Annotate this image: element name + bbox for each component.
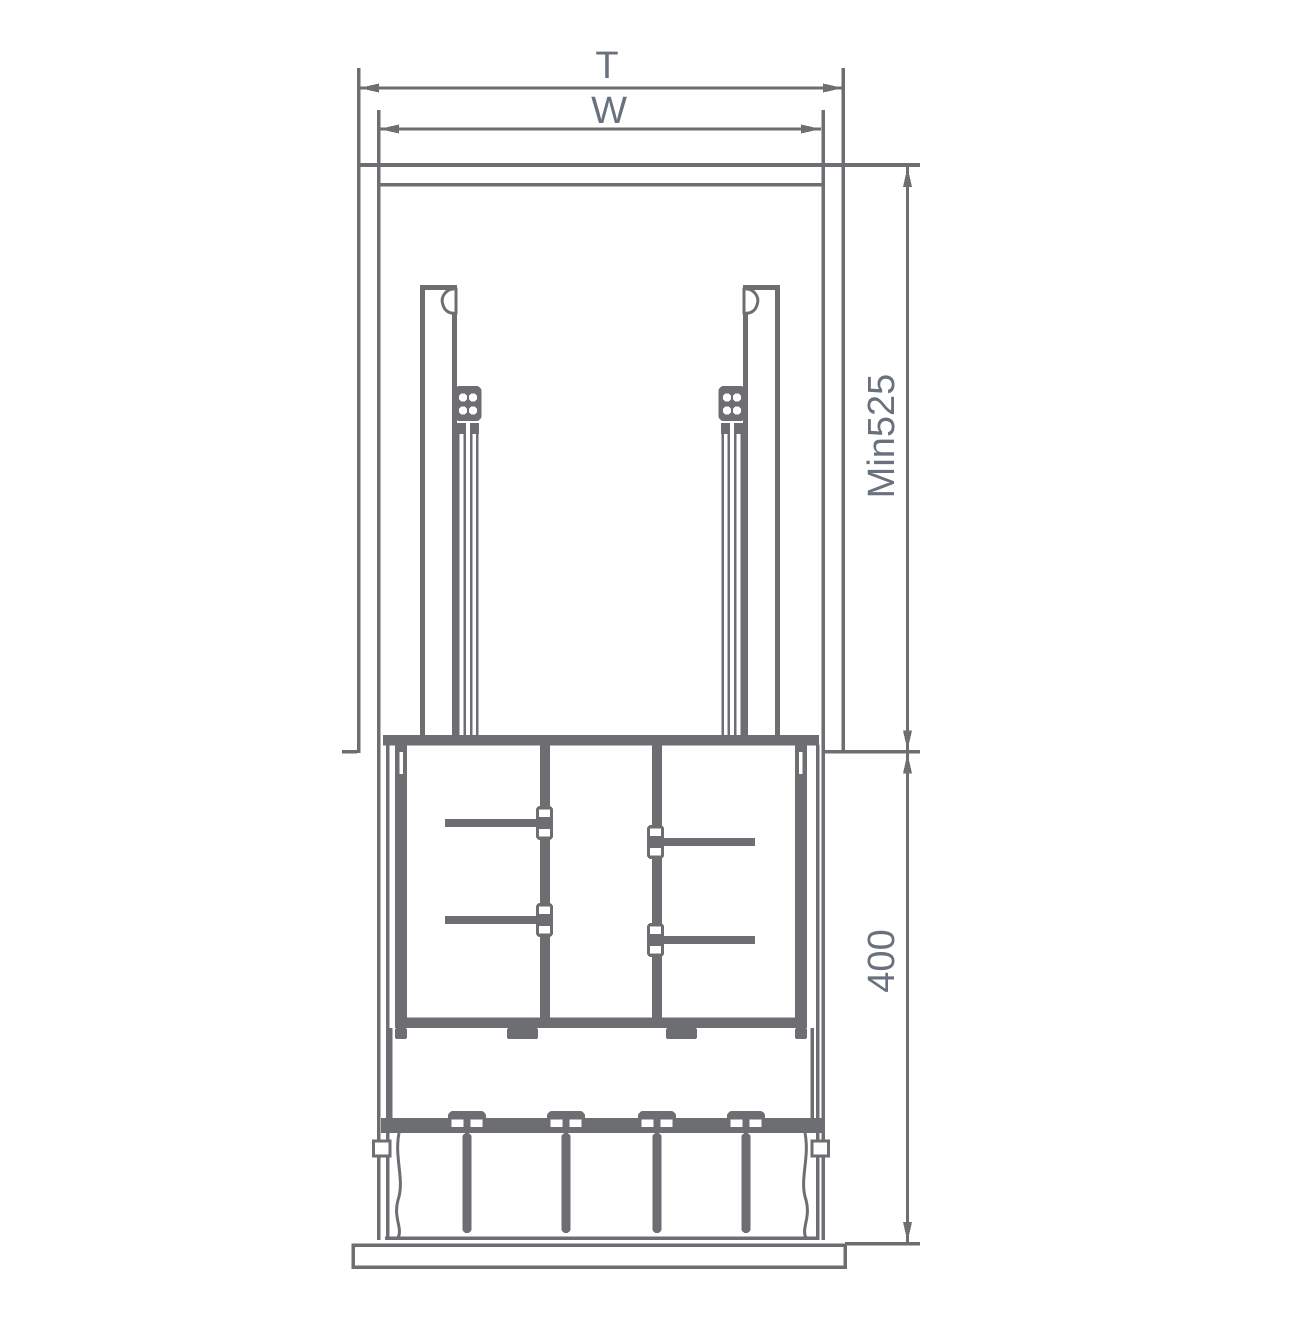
rail-left-channel-inner [452, 288, 457, 737]
basket-clip-slot [452, 1120, 464, 1128]
cabinet-left-outer-wall [357, 68, 361, 753]
handle-clip-slot [539, 926, 550, 934]
screw-hole-icon [723, 406, 731, 414]
rail-right-block [734, 423, 744, 434]
basket-clip-slot [642, 1120, 654, 1128]
arrow-down-icon [903, 731, 912, 751]
handle-clip-slot [539, 829, 550, 837]
dimension-label-min525: Min525 [862, 351, 902, 521]
cabinet-right-inner-wall [822, 110, 826, 1240]
rail-left-block [457, 423, 467, 434]
cabinet-right-outer-wall [842, 68, 846, 753]
rail-left-channel-outer [420, 285, 425, 737]
screw-hole-icon [723, 393, 731, 401]
dimension-label-t: T [577, 46, 637, 86]
rail-left [420, 285, 482, 737]
rail-right-hook [744, 289, 758, 313]
box-right-wall-slot [799, 752, 803, 774]
rail-left-slide-member [457, 434, 460, 737]
handle-rod [445, 916, 537, 924]
box-foot [666, 1028, 697, 1039]
screw-hole-icon [459, 393, 467, 401]
box-foot [395, 1028, 407, 1039]
basket-post [463, 1133, 472, 1233]
unit-top-bar [383, 735, 819, 746]
basket-clip-and-post [638, 1111, 676, 1233]
handle-clip-slot [650, 946, 661, 954]
handle-clip-slot [650, 927, 661, 935]
base-plate [353, 1245, 845, 1267]
cabinet-top-line [357, 163, 920, 167]
pullout-unit [374, 735, 829, 1240]
rail-left-block [470, 423, 479, 434]
basket-clip-slot [551, 1120, 563, 1128]
box-divider-left [540, 746, 550, 1018]
side-bracket-left [374, 1141, 391, 1156]
dimension-label-w: W [579, 91, 639, 131]
basket-post [653, 1133, 662, 1233]
rail-right-slide-member [722, 434, 725, 737]
rail-left-hook [442, 289, 456, 313]
basket-clip-and-post [448, 1111, 486, 1233]
rail-left-mounting-plate [455, 386, 482, 421]
rail-right-block [721, 423, 730, 434]
handle-rod [664, 936, 755, 944]
basket-mesh-side-right [804, 1133, 808, 1238]
box-bottom-bar [395, 1018, 807, 1029]
rail-left-slide-member [464, 434, 467, 737]
screw-hole-icon [459, 406, 467, 414]
rail-right-slide-member [734, 434, 737, 737]
dimension-min525-line [906, 167, 909, 751]
right-bottom-extension-line [845, 1242, 920, 1246]
rail-right [719, 285, 781, 737]
box-divider-right [652, 746, 662, 1018]
handle-clip-slot [650, 829, 661, 837]
rail-right-channel-inner [743, 288, 748, 737]
drawing-linework [0, 0, 1290, 1321]
arrow-left-icon [359, 84, 379, 93]
rail-right-mounting-plate [719, 386, 746, 421]
rail-left-slide-member [470, 434, 473, 737]
box-foot [795, 1028, 807, 1039]
box-right-wall [795, 745, 807, 1028]
right-mid-extension-line [825, 750, 920, 754]
basket-bottom-line [385, 1237, 819, 1241]
arrow-up-icon [903, 754, 912, 774]
side-bracket-right [812, 1141, 829, 1156]
mid-panel-right-border [811, 1028, 815, 1118]
arrow-right-icon [823, 84, 843, 93]
box-left-wall-slot [400, 752, 404, 774]
rail-left-slide-member [476, 434, 479, 737]
handle-clip-slot [539, 810, 550, 818]
basket-clip-slot [731, 1120, 743, 1128]
basket-post [742, 1133, 751, 1233]
handle-rod [445, 819, 537, 827]
basket-post [562, 1133, 571, 1233]
unit-left-wall-inner [386, 745, 390, 1240]
unit-right-wall-inner [816, 745, 820, 1240]
basket-clip-and-post [547, 1111, 585, 1233]
arrow-down-icon [903, 1222, 912, 1242]
basket-clip-and-post [727, 1111, 765, 1233]
cabinet-outline [342, 68, 920, 1246]
arrow-up-icon [903, 167, 912, 187]
handle-rod [664, 838, 755, 846]
basket-mesh-side-left [397, 1133, 401, 1238]
cabinet-left-inner-wall [377, 110, 381, 1240]
dimension-min525 [903, 167, 912, 751]
left-wall-end-tick [342, 750, 357, 754]
basket-clip-slot [471, 1120, 483, 1128]
screw-hole-icon [469, 393, 477, 401]
handle-clip-slot [539, 907, 550, 915]
cabinet-inner-top-line [377, 183, 823, 187]
handle-clip-slot [650, 848, 661, 856]
basket-clip-slot [750, 1120, 762, 1128]
rail-right-slide-member [728, 434, 731, 737]
screw-hole-icon [469, 406, 477, 414]
screw-hole-icon [733, 393, 741, 401]
technical-drawing-canvas: T W Min525 400 [0, 0, 1290, 1321]
mid-panel-left-border [389, 1028, 393, 1118]
box-left-wall [395, 745, 407, 1028]
dimension-label-400: 400 [862, 876, 902, 1046]
dimension-400-line [906, 754, 909, 1243]
screw-hole-icon [733, 406, 741, 414]
rail-right-slide-member [741, 434, 744, 737]
box-foot [507, 1028, 538, 1039]
basket-clip-slot [661, 1120, 673, 1128]
rail-right-channel-outer [775, 285, 780, 737]
basket-clip-slot [570, 1120, 582, 1128]
arrow-left-icon [379, 125, 399, 134]
dimension-400 [903, 754, 912, 1243]
arrow-right-icon [801, 125, 821, 134]
